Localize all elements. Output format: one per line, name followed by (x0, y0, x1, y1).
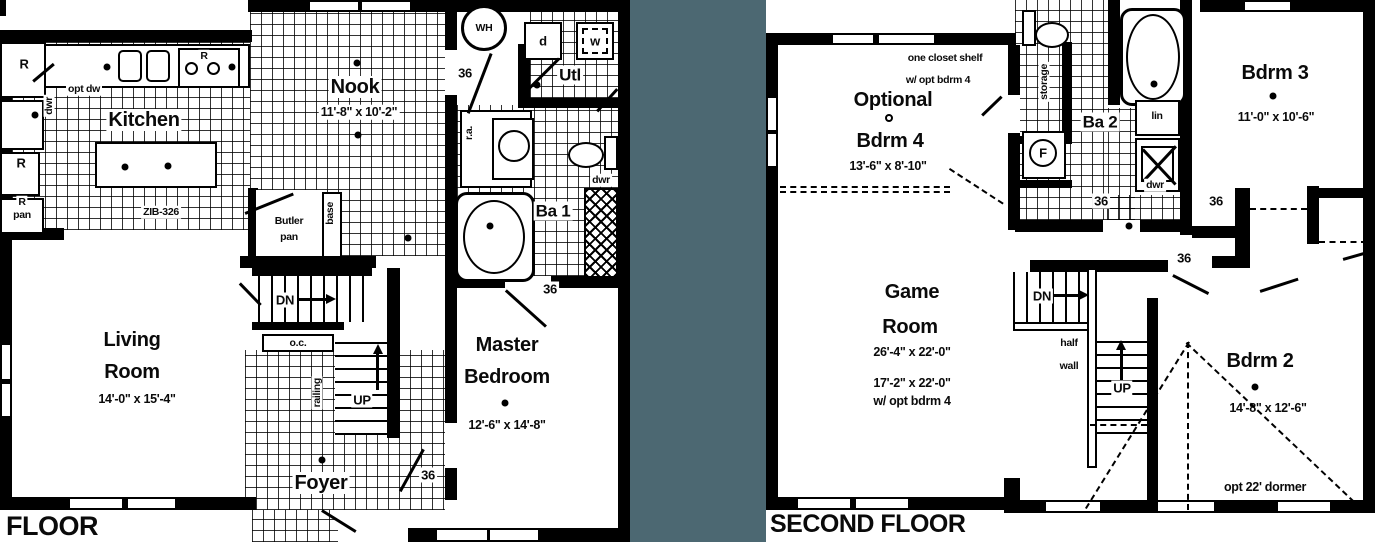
window (1158, 500, 1214, 513)
bdrm2-label: Bdrm 2 (1224, 350, 1295, 372)
kitchen-label: Kitchen (106, 109, 181, 131)
ceiling-light-dot (165, 163, 172, 170)
game-room-label-1: Game (883, 281, 941, 303)
optional-wall-dashed (949, 168, 1004, 205)
pantry-pan-label: pan (11, 209, 33, 222)
bath1-sink (498, 130, 530, 162)
wall (252, 322, 344, 330)
ceiling-light-dot (122, 164, 129, 171)
dormer-dashed-line (1187, 342, 1189, 510)
up-arrow-icon (1116, 340, 1126, 350)
master-label-1: Master (474, 334, 541, 356)
stairs-dn-label: DN (1031, 289, 1053, 304)
wall (240, 256, 376, 268)
wall (1008, 180, 1072, 188)
stairs-dn-label: DN (274, 293, 296, 308)
wall (0, 0, 6, 16)
wall (1008, 45, 1020, 230)
stair-rail (1013, 322, 1090, 331)
window (1278, 500, 1330, 513)
dormer-note: opt 22' dormer (1222, 480, 1308, 495)
bathtub-basin (463, 200, 525, 274)
game-room-label-2: Room (880, 316, 939, 338)
toilet-tank (604, 136, 618, 170)
door-opening (1008, 95, 1020, 133)
wall (1317, 188, 1375, 198)
optional-bdrm4-label-1: Optional (852, 89, 935, 111)
half-wall (1087, 268, 1097, 468)
toilet-tank (1022, 10, 1036, 46)
wall (445, 468, 457, 500)
bath1-dwr-label: dwr (590, 174, 612, 187)
water-heater-label: WH (474, 22, 495, 35)
pantry-r-label: R (16, 196, 27, 209)
closet-door-dashed (1250, 208, 1307, 210)
window (798, 497, 850, 510)
furnace-label: F (1037, 146, 1049, 161)
utility-label: Utl (557, 66, 583, 85)
wall (1192, 226, 1235, 238)
window (0, 384, 12, 416)
stairs-up-label: UP (1111, 381, 1132, 396)
linen-shelves (584, 188, 618, 278)
bdrm3-label: Bdrm 3 (1239, 62, 1310, 84)
linen-label: lin (1149, 110, 1164, 123)
foyer-label: Foyer (293, 472, 350, 494)
opt-dw-label: opt dw (66, 83, 102, 96)
kitchen-sink (118, 50, 142, 82)
door-36-label: 36 (1175, 251, 1193, 266)
ceiling-light-dot (104, 64, 111, 71)
bath2-dwr-label: dwr (1144, 179, 1166, 192)
window (1245, 0, 1290, 12)
dn-arrow-icon (326, 294, 336, 304)
living-room-dims: 14'-0" x 15'-4" (96, 392, 177, 407)
window (70, 497, 122, 510)
optional-wall-dashed (780, 186, 950, 193)
up-arrow-icon (373, 344, 383, 354)
cabinet (0, 100, 44, 150)
island-model-label: ZIB-326 (141, 206, 181, 219)
storage-label: storage (1039, 62, 1050, 102)
tub-drain-dot (1151, 81, 1158, 88)
wall (1062, 42, 1072, 142)
base-label: base (325, 200, 336, 227)
master-dims: 12'-6" x 14'-8" (466, 418, 547, 433)
door-36-label: 36 (419, 468, 437, 483)
window (362, 0, 410, 12)
ceiling-light-dot (319, 457, 326, 464)
door-36-label: 36 (541, 282, 559, 297)
window (766, 134, 778, 166)
butler-label: Butler (273, 215, 306, 228)
game-room-dims-1: 26'-4" x 22'-0" (871, 345, 952, 360)
second-floor-plan: DN UP half wall one closet shelf w/ opt … (766, 0, 1375, 542)
ceiling-light-dot (1270, 93, 1277, 100)
return-air-label: r.a. (464, 124, 475, 142)
ceiling-light-dot (229, 64, 236, 71)
ceiling-light-dot (355, 132, 362, 139)
window (437, 528, 487, 542)
closet-note-1: one closet shelf (906, 52, 985, 65)
window (833, 33, 873, 45)
washer-label: w (588, 34, 602, 49)
first-floor-plan: DN o.c. UP railing R R R R pan opt dw dw… (0, 0, 630, 542)
window (0, 345, 12, 379)
half-wall-label-2: wall (1058, 360, 1081, 373)
oc-label: o.c. (288, 337, 309, 350)
dryer-label: d (537, 34, 549, 49)
window (766, 98, 778, 130)
wall (1015, 220, 1103, 232)
cabinet-r-label: R (14, 156, 27, 171)
ceiling-light-circle (885, 114, 893, 122)
burner-icon (207, 62, 220, 75)
door-swing-line (981, 96, 1002, 117)
window (128, 497, 175, 510)
toilet (568, 142, 604, 168)
burner-icon (185, 62, 198, 75)
optional-bdrm4-label-2: Bdrm 4 (854, 130, 925, 152)
window (490, 528, 538, 542)
refrigerator-r-label: R (17, 57, 30, 72)
optional-bdrm4-dims: 13'-6" x 8'-10" (847, 159, 928, 174)
door-36-label: 36 (1092, 194, 1110, 209)
window (879, 33, 934, 45)
range-r-label: R (198, 50, 209, 63)
game-room-dims-2: 17'-2" x 22'-0" (871, 376, 952, 391)
closet-shelf-dashed (1319, 241, 1367, 243)
wall (1108, 0, 1120, 105)
wall (445, 0, 457, 50)
master-label-2: Bedroom (462, 366, 552, 388)
wall (445, 278, 457, 423)
door-swing-line (1260, 278, 1299, 293)
game-room-dims-3: w/ opt bdrm 4 (871, 394, 952, 409)
stoop-tile-floor (252, 510, 338, 542)
bdrm2-dims: 14'-8" x 12'-6" (1227, 401, 1308, 416)
butler-pan-label: pan (278, 231, 300, 244)
ceiling-light-dot (405, 235, 412, 242)
up-arrow-line (376, 352, 379, 390)
ceiling-light-dot (32, 112, 39, 119)
tub-drain-dot (487, 223, 494, 230)
ceiling-light-dot (354, 60, 361, 67)
wall (6, 30, 252, 42)
wall (252, 268, 372, 276)
bdrm3-dims: 11'-0" x 10'-6" (1236, 110, 1317, 125)
door-36-label: 36 (456, 66, 474, 81)
bath2-tile-floor (1107, 195, 1180, 220)
wall (387, 268, 400, 438)
up-arrow-line (1120, 348, 1123, 382)
wall (1140, 220, 1180, 232)
railing-label: railing (312, 376, 323, 409)
second-floor-title: SECOND FLOOR (770, 510, 965, 539)
kitchen-sink (146, 50, 170, 82)
dn-arrow-line (298, 298, 326, 301)
dwr-label: dwr (44, 95, 55, 117)
wall (248, 0, 622, 12)
door-swing-line (1172, 274, 1209, 294)
window (1046, 500, 1100, 513)
ceiling-light-dot (1252, 384, 1259, 391)
living-room-label-2: Room (102, 361, 161, 383)
nook-label: Nook (329, 76, 382, 98)
ceiling-light-dot (1126, 223, 1133, 230)
ceiling-light-dot (502, 400, 509, 407)
wall (1030, 260, 1168, 272)
bath2-label: Ba 2 (1081, 113, 1120, 132)
nook-dims: 11'-8" x 10'-2" (319, 105, 400, 120)
window (310, 0, 358, 12)
dn-arrow-line (1054, 294, 1080, 297)
closet-note-2: w/ opt bdrm 4 (904, 74, 972, 87)
living-room-label-1: Living (101, 329, 162, 351)
wall (1363, 10, 1375, 513)
bath1-label: Ba 1 (534, 202, 573, 221)
half-wall-label-1: half (1058, 337, 1079, 350)
first-floor-title: FLOOR (6, 511, 98, 542)
wall (1212, 256, 1248, 268)
door-36-label: 36 (1207, 194, 1225, 209)
wall (618, 0, 630, 542)
kitchen-island (95, 142, 217, 188)
window (856, 497, 908, 510)
toilet (1035, 22, 1069, 48)
floor-plan-canvas: DN o.c. UP railing R R R R pan opt dw dw… (0, 0, 1375, 542)
stairs-up-label: UP (351, 393, 372, 408)
